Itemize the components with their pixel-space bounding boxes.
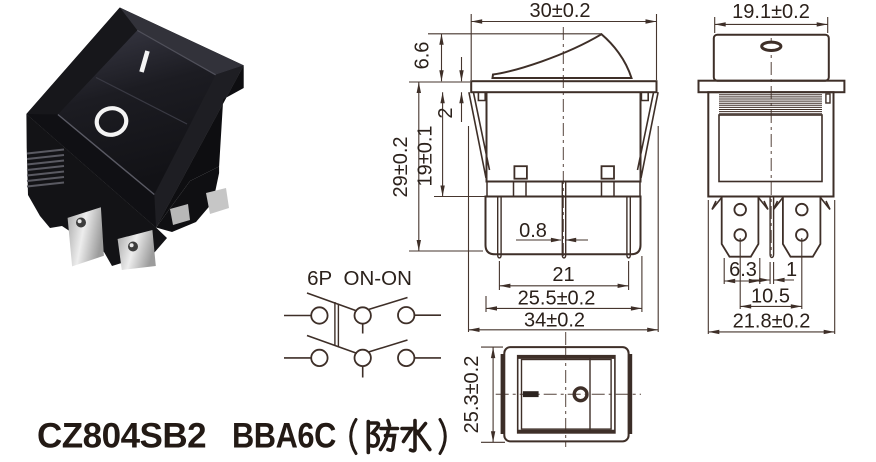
svg-text:21.8±0.2: 21.8±0.2 <box>733 311 811 333</box>
svg-text:10.5: 10.5 <box>751 286 790 308</box>
svg-text:25.3±0.2: 25.3±0.2 <box>461 356 483 434</box>
svg-text:30±0.2: 30±0.2 <box>529 0 590 22</box>
svg-text:6P ON-ON: 6P ON-ON <box>307 267 412 290</box>
svg-text:19.1±0.2: 19.1±0.2 <box>732 1 810 23</box>
svg-text:6.6: 6.6 <box>412 42 434 70</box>
svg-text:29±0.2: 29±0.2 <box>390 136 412 197</box>
svg-text:0.8: 0.8 <box>519 220 547 242</box>
svg-text:BBA6C: BBA6C <box>232 416 336 455</box>
svg-text:6.3: 6.3 <box>729 259 757 281</box>
svg-text:34±0.2: 34±0.2 <box>524 310 585 332</box>
svg-text:2: 2 <box>435 107 457 118</box>
svg-text:19±0.1: 19±0.1 <box>415 125 437 186</box>
svg-text:CZ804SB2: CZ804SB2 <box>37 417 206 456</box>
svg-text:25.5±0.2: 25.5±0.2 <box>518 288 596 310</box>
svg-text:1: 1 <box>786 259 797 281</box>
svg-text:21: 21 <box>552 264 574 286</box>
